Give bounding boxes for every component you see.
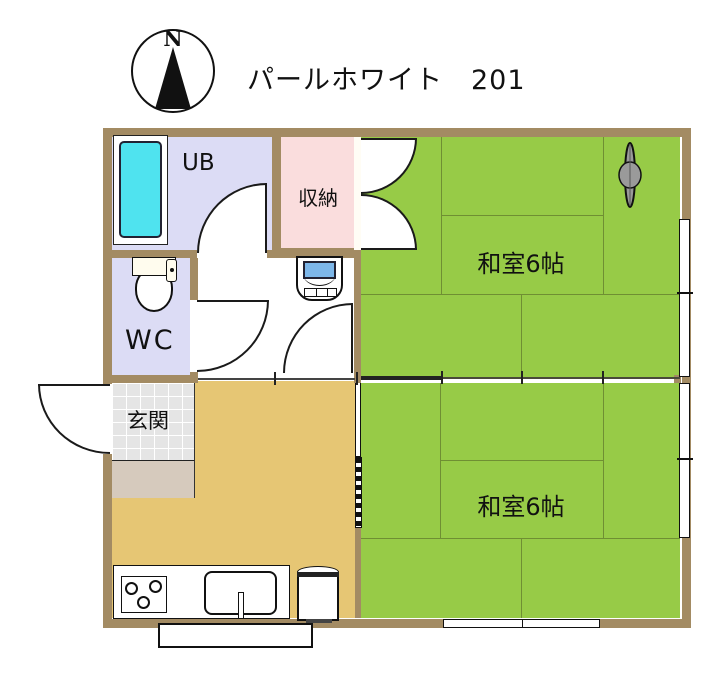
boundary-tick xyxy=(521,371,523,384)
stove-burner xyxy=(149,580,162,593)
water-heater-base xyxy=(306,619,332,623)
tatami-room-upper-label: 和室6帖 xyxy=(477,244,564,279)
floor-plan: N パールホワイト 201 xyxy=(0,0,722,679)
wall xyxy=(267,250,281,258)
window xyxy=(443,619,600,628)
page-title: パールホワイト 201 xyxy=(247,58,526,97)
closet-opening xyxy=(354,137,361,250)
window xyxy=(679,383,690,538)
tatami-line xyxy=(521,538,522,618)
tatami-line xyxy=(603,137,604,294)
entrance-label: 玄関 xyxy=(127,405,169,435)
wall xyxy=(354,250,361,383)
tatami-line xyxy=(603,383,604,538)
compass-north-label: N xyxy=(163,26,182,51)
toilet-flush-button xyxy=(170,268,174,272)
wall xyxy=(272,137,281,250)
window xyxy=(679,219,690,377)
front-door-swing xyxy=(38,384,110,454)
tatami-room-lower-label: 和室6帖 xyxy=(477,487,564,522)
tatami-line xyxy=(521,294,522,377)
wc-label: WC xyxy=(125,325,175,356)
washing-machine-controls xyxy=(304,288,337,297)
air-conditioner-icon xyxy=(617,140,643,210)
room-boundary-line xyxy=(361,376,442,380)
compass-needle-icon xyxy=(155,47,191,109)
bathtub-basin xyxy=(119,141,162,238)
wall xyxy=(190,258,198,300)
unit-bath-label: UB xyxy=(182,150,215,176)
wall xyxy=(103,375,198,383)
tatami-line xyxy=(440,460,603,461)
stove-burner xyxy=(137,596,150,609)
boundary-tick xyxy=(274,372,276,385)
boundary-tick xyxy=(441,371,443,384)
wall xyxy=(355,528,361,618)
sliding-door-panel xyxy=(355,383,361,457)
tatami-line xyxy=(441,215,603,216)
sliding-door-hatch xyxy=(355,457,362,528)
closet-label: 収納 xyxy=(298,182,338,211)
boundary-tick xyxy=(602,371,604,384)
boundary-tick xyxy=(356,372,358,385)
porch-step xyxy=(158,623,313,648)
water-heater-icon xyxy=(297,577,339,621)
stove-burner xyxy=(125,582,138,595)
entrance-step xyxy=(112,460,195,498)
hall-dk-boundary-line xyxy=(198,378,355,380)
faucet-icon xyxy=(238,592,244,619)
